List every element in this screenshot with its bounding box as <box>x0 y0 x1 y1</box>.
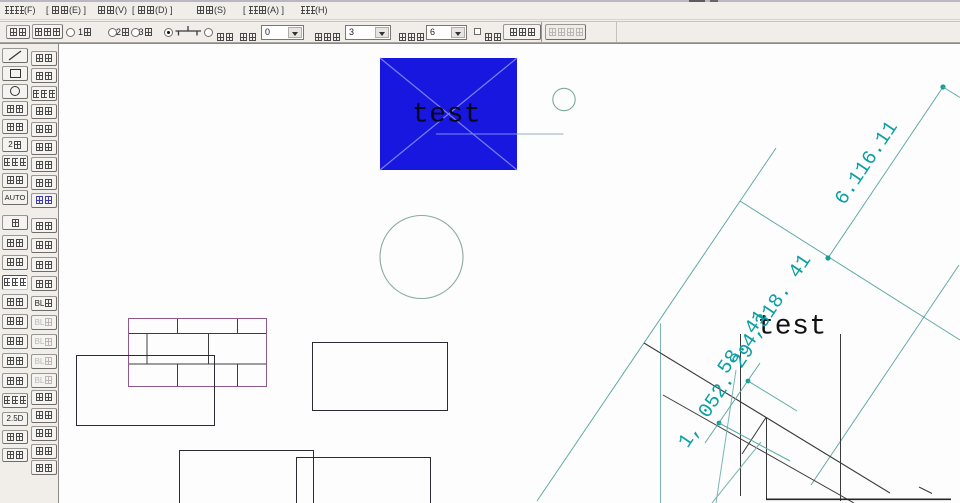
svg-text:test: test <box>412 100 481 131</box>
